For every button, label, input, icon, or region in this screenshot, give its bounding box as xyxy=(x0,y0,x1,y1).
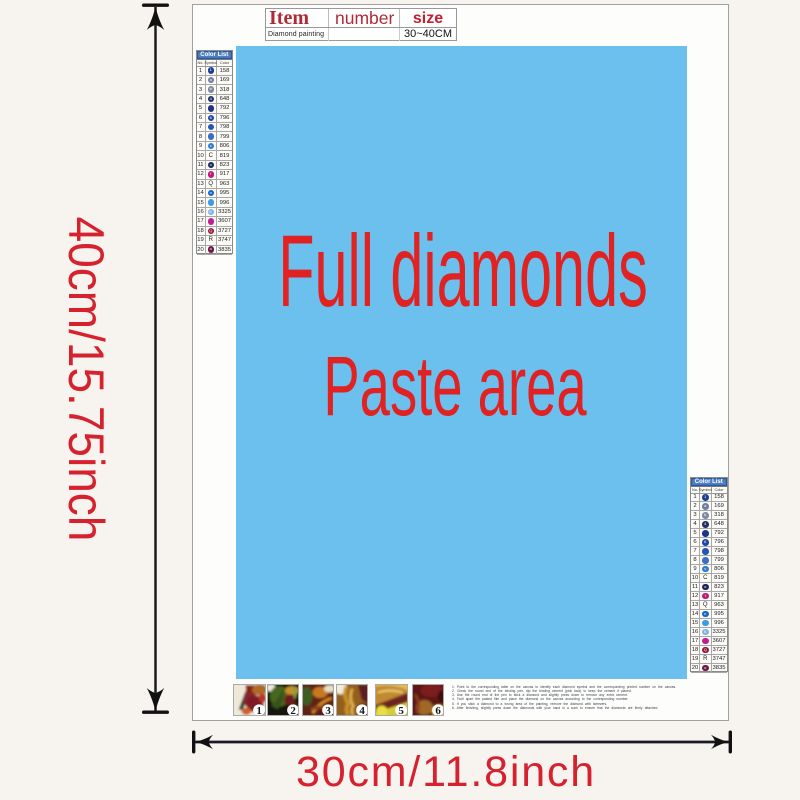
svg-text:2: 2 xyxy=(290,705,295,715)
svg-text:5: 5 xyxy=(399,705,405,715)
svg-text:4: 4 xyxy=(359,705,365,715)
svg-text:6: 6 xyxy=(435,705,441,715)
svg-text:3: 3 xyxy=(325,705,331,715)
svg-text:1: 1 xyxy=(256,705,261,715)
